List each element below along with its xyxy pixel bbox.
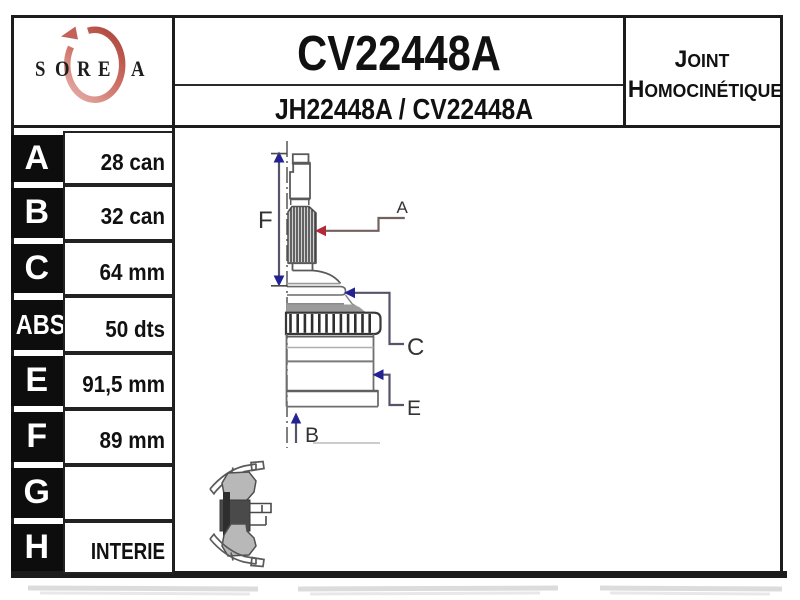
svg-text:E: E: [407, 397, 421, 420]
svg-text:F: F: [258, 207, 273, 234]
svg-text:A: A: [397, 198, 409, 217]
svg-text:C: C: [407, 334, 424, 361]
svg-text:B: B: [305, 424, 319, 447]
